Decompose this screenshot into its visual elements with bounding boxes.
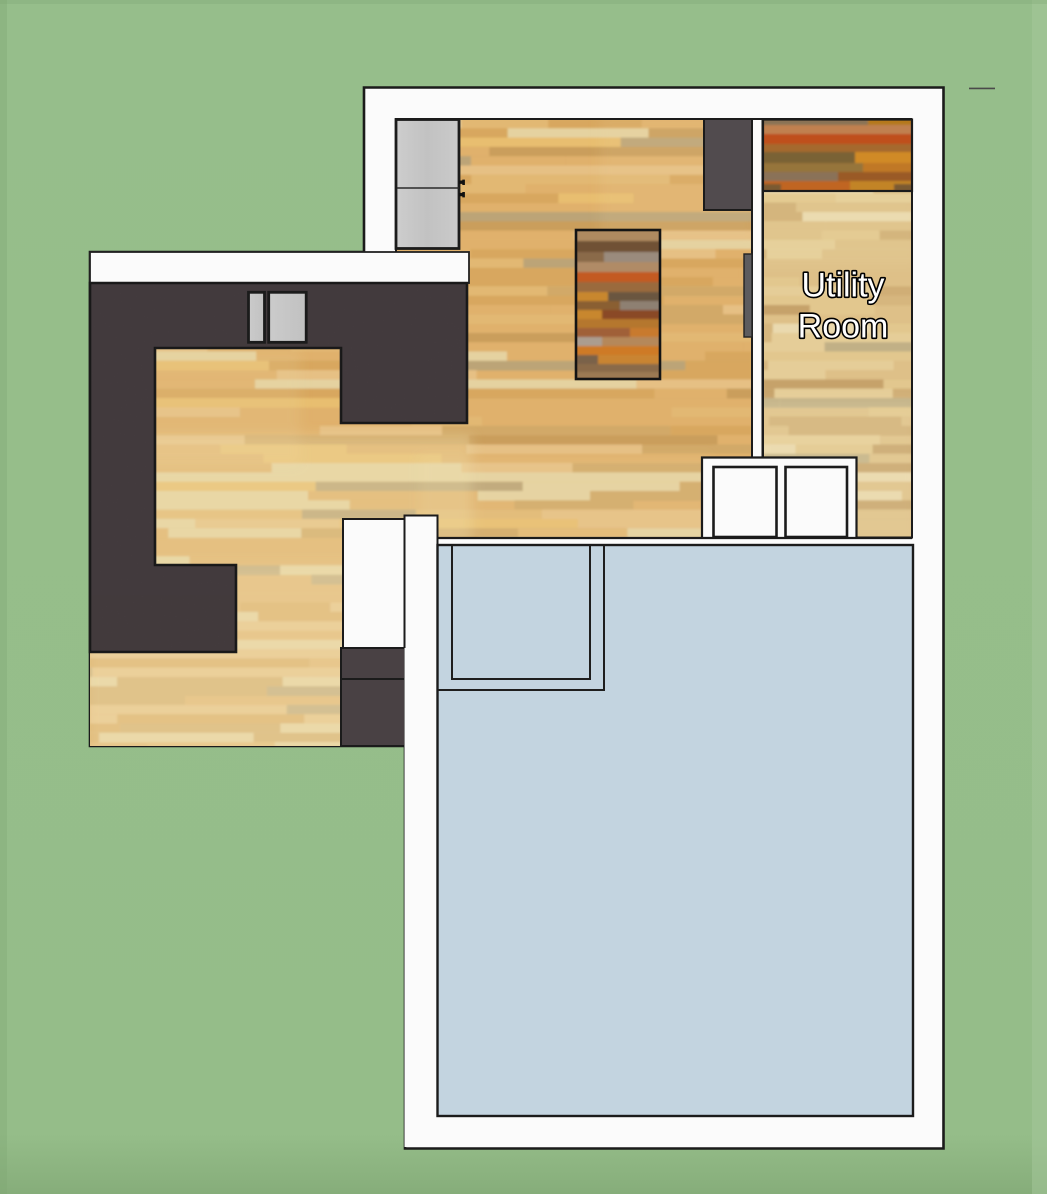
svg-text:Utility: Utility (801, 267, 884, 305)
svg-text:Room: Room (798, 308, 889, 346)
